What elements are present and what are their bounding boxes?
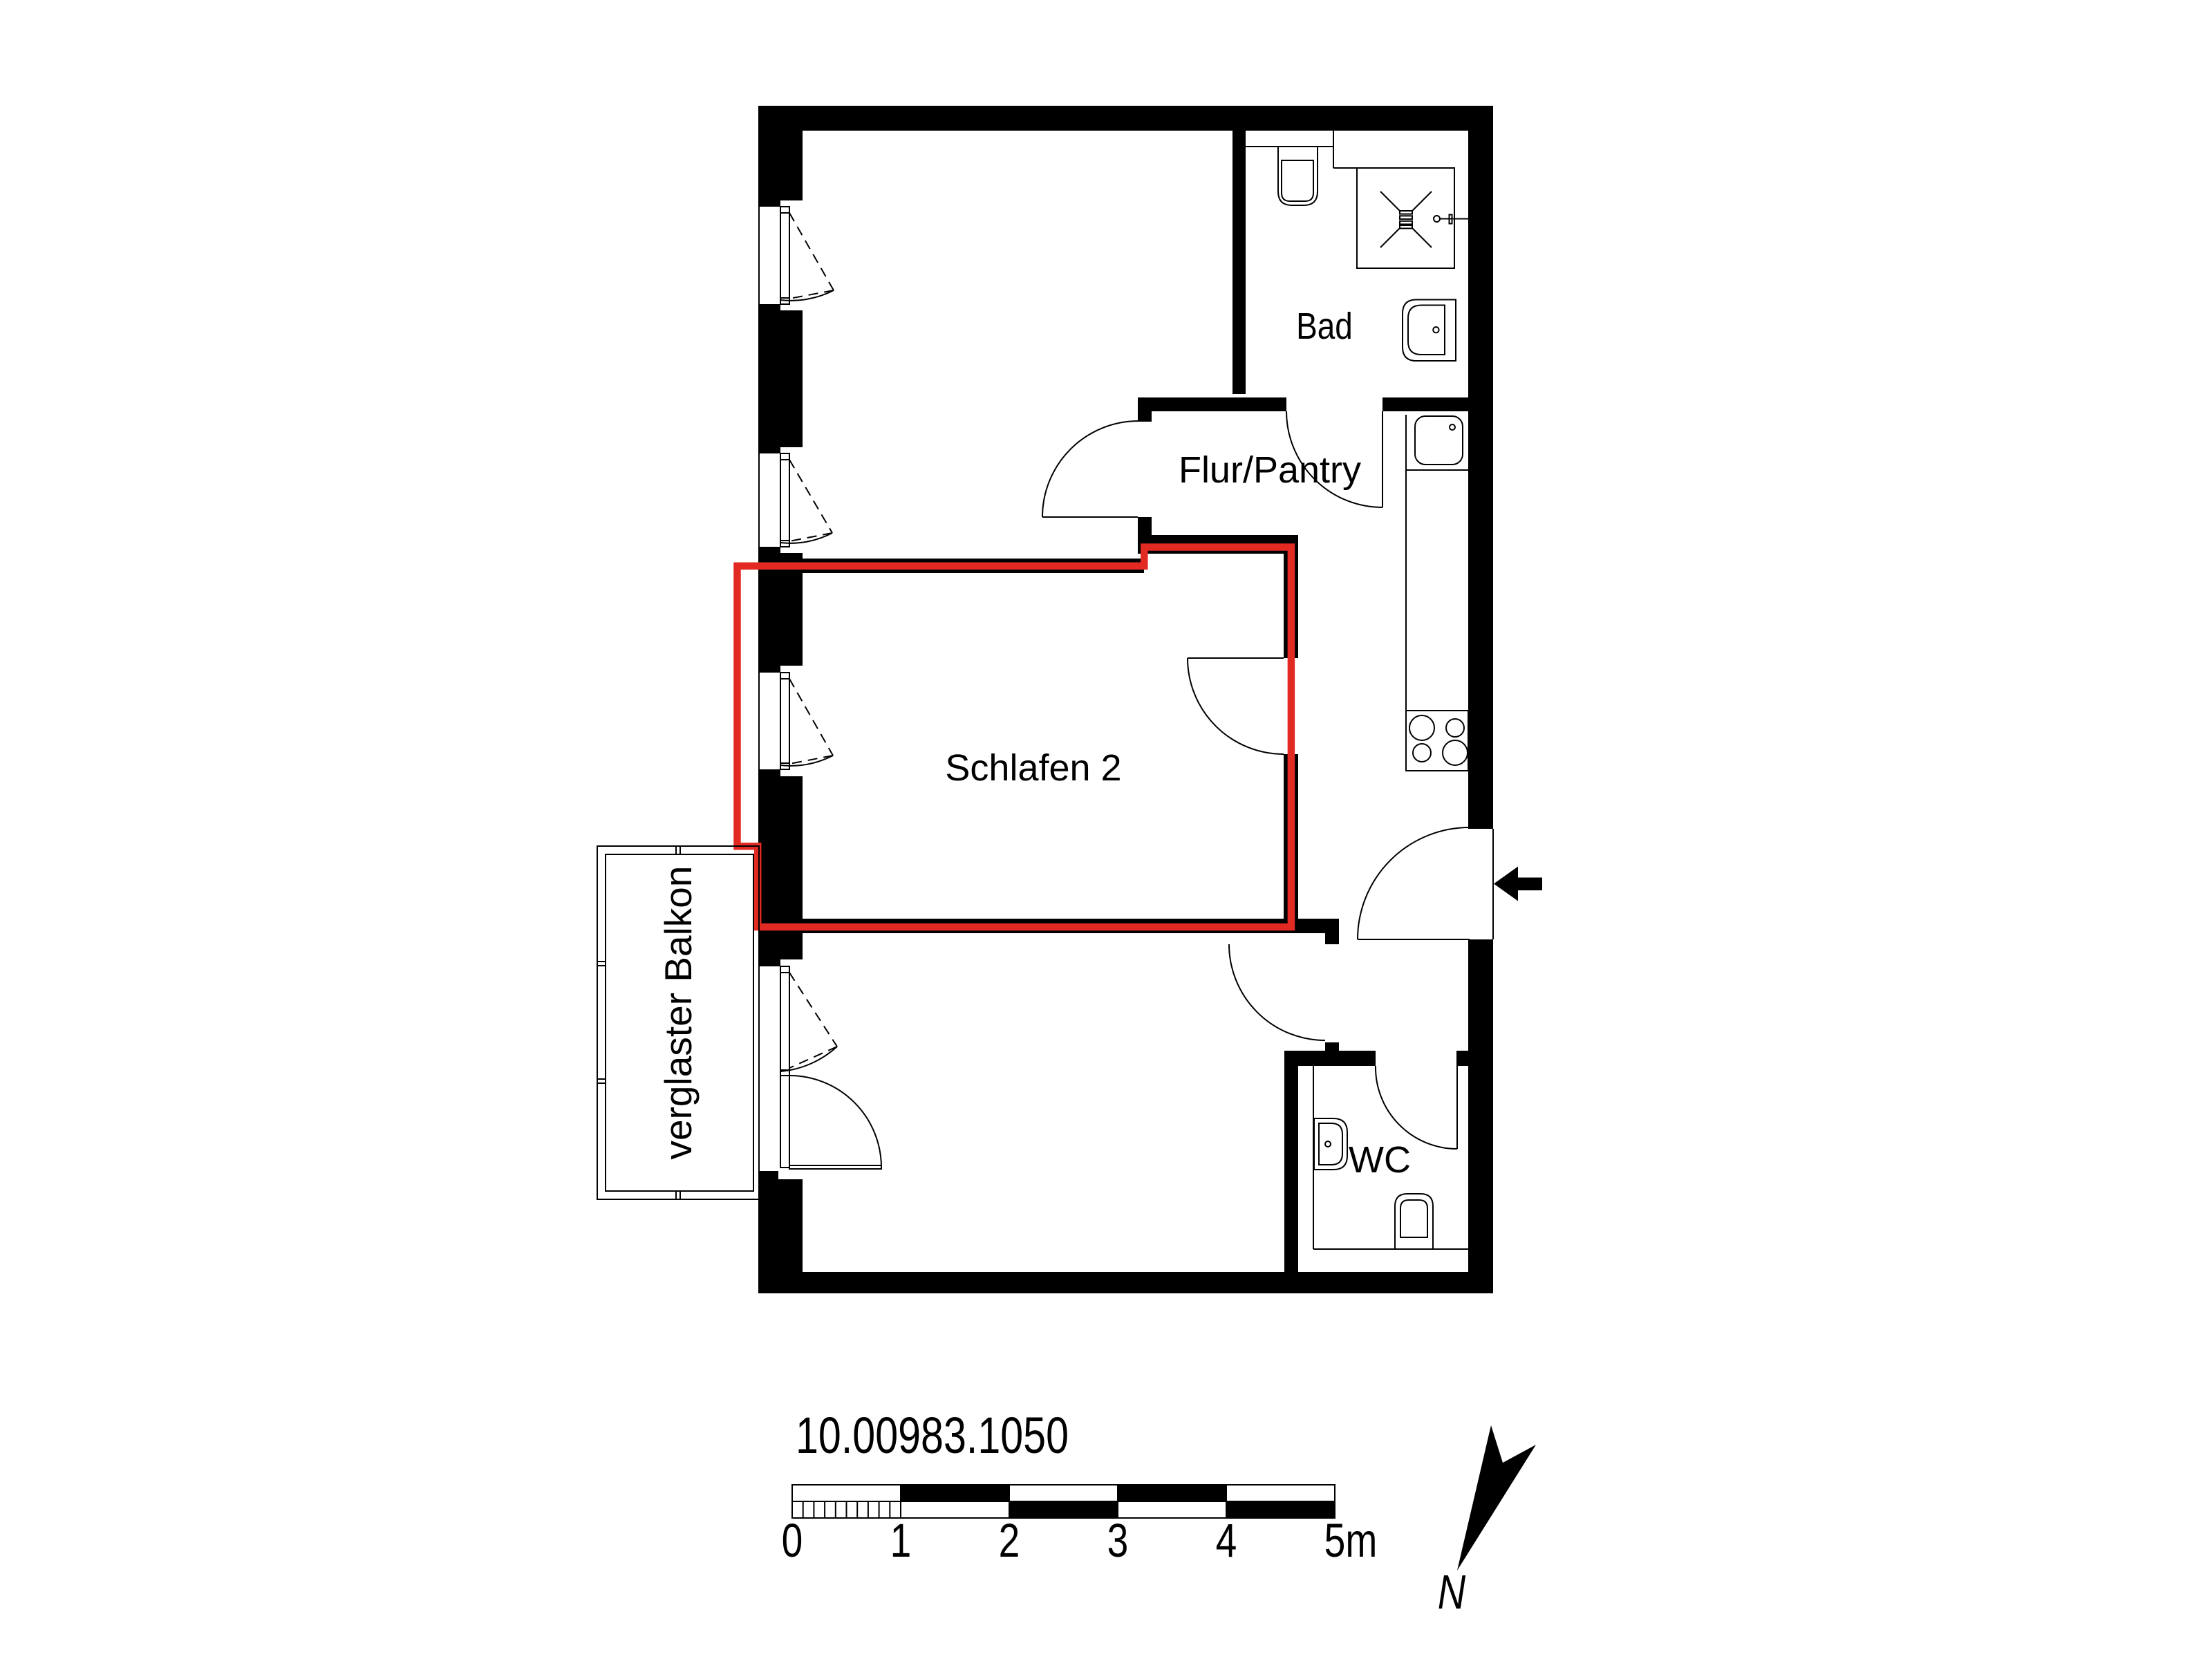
svg-text:Schlafen 2: Schlafen 2 (945, 747, 1121, 789)
svg-text:Flur/Pantry: Flur/Pantry (1179, 449, 1361, 491)
svg-text:0: 0 (782, 1514, 803, 1567)
svg-text:5m: 5m (1324, 1514, 1378, 1567)
svg-text:verglaster Balkon: verglaster Balkon (657, 866, 700, 1160)
svg-text:3: 3 (1107, 1514, 1129, 1567)
svg-text:2: 2 (999, 1514, 1020, 1567)
svg-text:WC: WC (1349, 1139, 1411, 1181)
svg-text:1: 1 (890, 1514, 912, 1567)
svg-text:N: N (1438, 1566, 1466, 1619)
svg-text:4: 4 (1216, 1514, 1237, 1567)
svg-text:Bad: Bad (1296, 306, 1353, 347)
svg-text:10.00983.1050: 10.00983.1050 (796, 1407, 1069, 1465)
